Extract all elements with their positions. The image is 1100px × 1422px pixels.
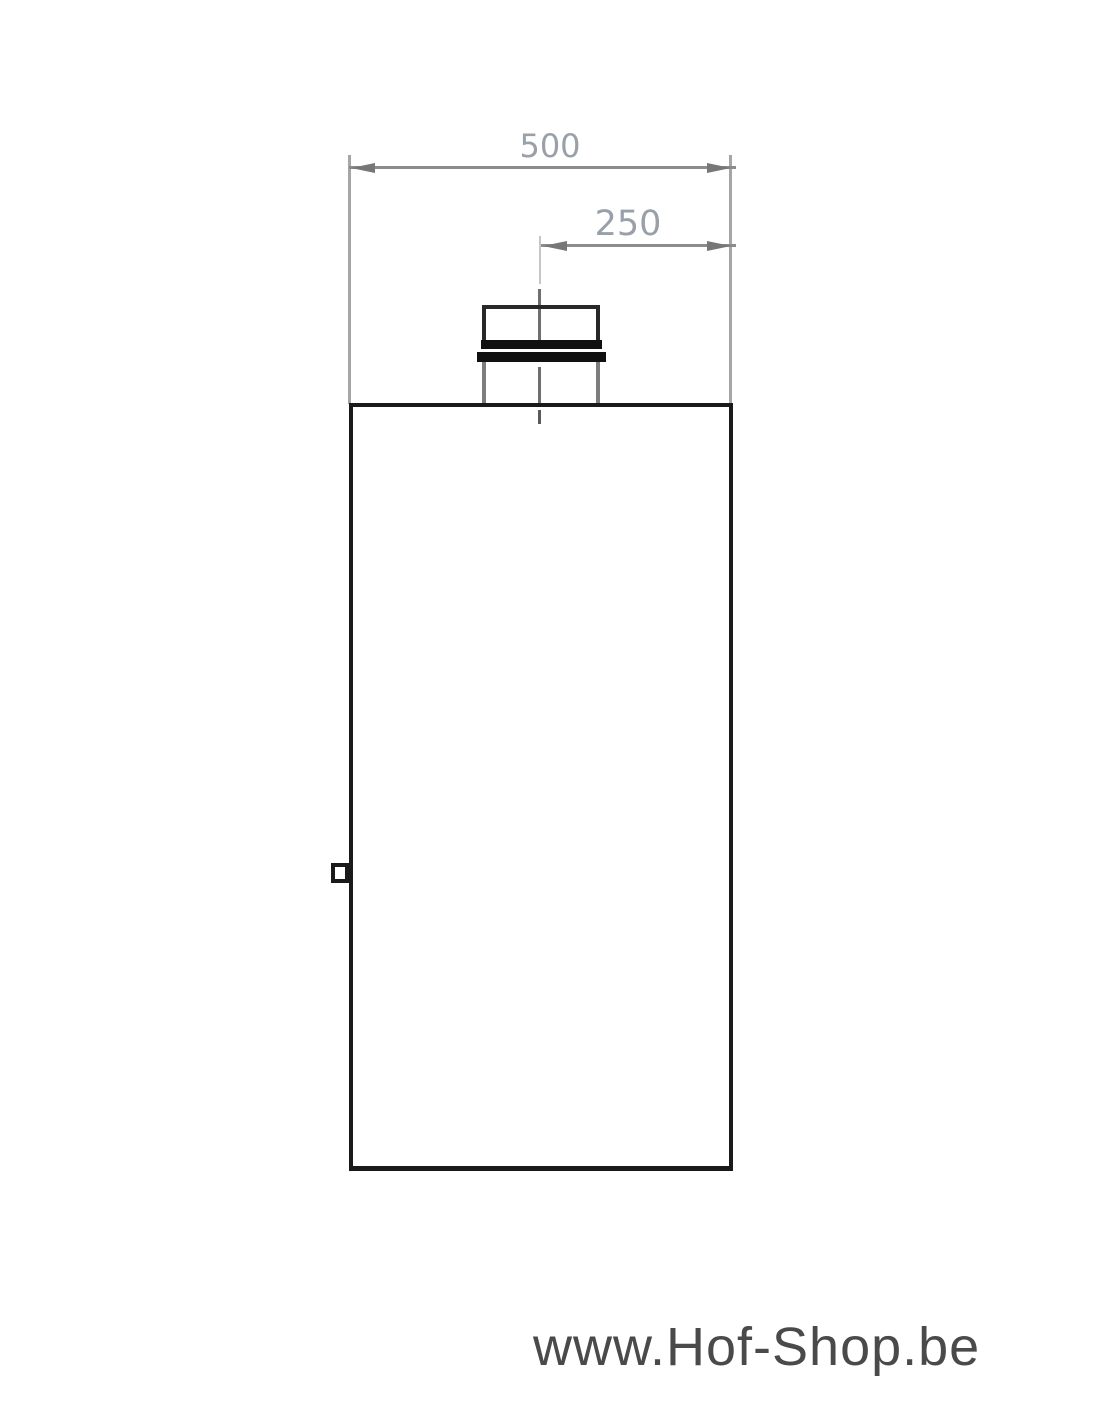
dim500-extension-line-right [729, 155, 732, 404]
dim500-label: 500 [505, 130, 595, 162]
centerline-segment-top [539, 236, 541, 284]
dim250-arrowhead-left-icon [543, 241, 567, 251]
dim250-label: 250 [583, 207, 673, 242]
collar-upper-box [482, 305, 600, 341]
dim500-extension-line-left [348, 155, 351, 404]
drawing-canvas: 500 250 www.Hof-Shop.be [0, 0, 1100, 1422]
watermark-text: www.Hof-Shop.be [533, 1320, 980, 1374]
centerline-segment-inside-body [538, 410, 541, 424]
dim500-arrowhead-right-icon [707, 163, 731, 173]
body-outline [349, 403, 733, 1171]
dim500-dimension-line [349, 166, 736, 169]
collar-lower-box [482, 362, 600, 404]
collar-flange-bar-lower [477, 352, 606, 362]
collar-flange-bar-upper [481, 340, 602, 349]
side-connection-tab [331, 863, 349, 883]
dim250-arrowhead-right-icon [707, 241, 731, 251]
dim500-arrowhead-left-icon [351, 163, 375, 173]
